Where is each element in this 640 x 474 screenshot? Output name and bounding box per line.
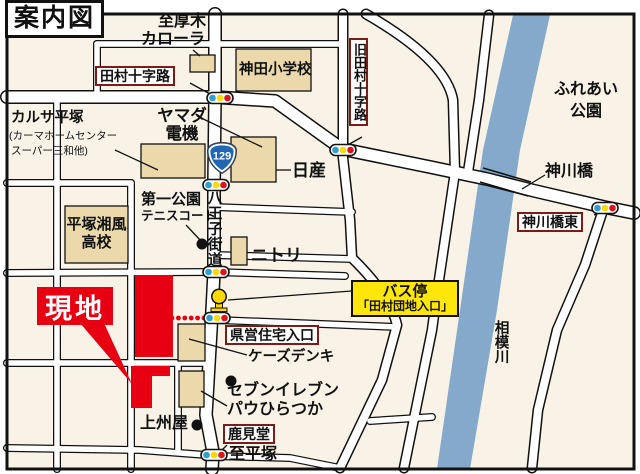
pau-hiratsuka-label: パウひらつか bbox=[227, 401, 323, 419]
genchi-destination-label: 現地 bbox=[37, 287, 113, 325]
building-nitori bbox=[231, 237, 247, 265]
joshuya-dot bbox=[192, 420, 203, 431]
hachioji-kaido-label: 八王子街道 bbox=[205, 190, 222, 268]
bus-stop-icon bbox=[211, 289, 227, 311]
traffic-signal-icon bbox=[204, 313, 230, 324]
fureai-park-label-line1: ふれあい bbox=[546, 81, 626, 99]
building-seven-eleven bbox=[179, 371, 204, 407]
to-atsugi-label: 至厚木 bbox=[158, 13, 206, 31]
building-nissan bbox=[231, 137, 276, 182]
kyu-tamura-crossing-label: 旧田村十字路 bbox=[349, 38, 368, 126]
fureai-park-label-line2: 公園 bbox=[546, 103, 626, 121]
building-corolla bbox=[190, 55, 215, 72]
traffic-signal-icon bbox=[207, 93, 233, 104]
daiichi-park-label: 第一公園 bbox=[141, 191, 201, 208]
traffic-signal-icon bbox=[330, 145, 356, 156]
kamikawabashi-higashi-label: 神川橋東 bbox=[517, 212, 583, 232]
traffic-signal-icon bbox=[203, 267, 229, 278]
shofu-highschool-label-line1: 平塚湘風 bbox=[66, 216, 127, 233]
traffic-signal-icon bbox=[201, 450, 227, 461]
shikamido-label: 鹿見堂 bbox=[223, 424, 275, 444]
shofu-highschool-label-line2: 高校 bbox=[66, 234, 127, 251]
corolla-label: カローラ bbox=[141, 31, 205, 49]
karusa-hiratsuka-label: カルサ平塚 bbox=[11, 110, 84, 127]
yamada-denki-label-line2: 電機 bbox=[151, 125, 213, 144]
ks-denki-label: ケーズデンキ bbox=[248, 349, 334, 366]
destination-parcel-north bbox=[135, 275, 173, 357]
route-number: 129 bbox=[213, 151, 231, 163]
bus-stop-label-line2: 「田村団地入口」 bbox=[357, 300, 453, 314]
nitori-label: ニトリ bbox=[251, 246, 302, 266]
traffic-signal-icon bbox=[592, 203, 618, 214]
seven-eleven-label: セブンイレブン bbox=[227, 382, 339, 400]
building-karusa-yamada bbox=[141, 144, 205, 178]
kenei-jutaku-label: 県営住宅入口 bbox=[225, 325, 319, 345]
sagami-river-label: 相模川 bbox=[492, 320, 509, 364]
guide-map: 129 案内図 至厚木 カローラ 田村十字路 神田小学校 旧田村十字路 ふれあい… bbox=[0, 0, 640, 474]
kanda-elementary-label: 神田小学校 bbox=[239, 62, 312, 79]
tamura-crossing-label: 田村十字路 bbox=[95, 66, 175, 86]
bus-stop-label-line1: バス停 bbox=[357, 283, 453, 300]
to-hiratsuka-label: 至平塚 bbox=[229, 446, 277, 464]
yamada-denki-label-line1: ヤマダ bbox=[151, 107, 213, 126]
traffic-signal-icon bbox=[203, 180, 229, 191]
page-title: 案内図 bbox=[5, 0, 104, 38]
joshuya-label: 上州屋 bbox=[140, 415, 188, 433]
karusa-sub-label-1: (カーマホームセンター bbox=[9, 130, 117, 142]
bus-stop-label: バス停 「田村団地入口」 bbox=[351, 280, 459, 317]
kamikawabashi-label: 神川橋 bbox=[545, 163, 593, 181]
nissan-label: 日産 bbox=[292, 161, 326, 181]
karusa-sub-label-2: スーパー三和他) bbox=[11, 145, 88, 157]
